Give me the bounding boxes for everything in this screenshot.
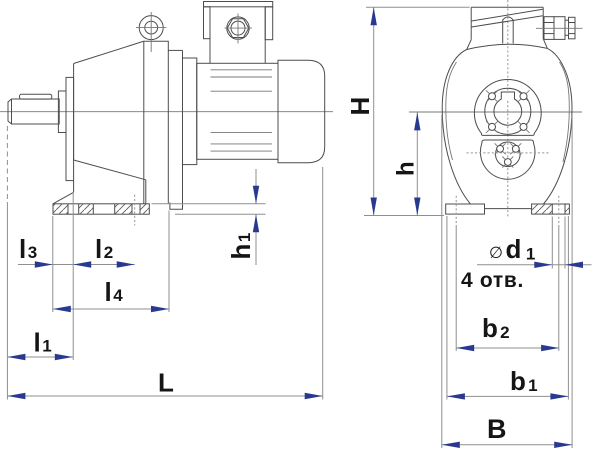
- svg-text:4 отв.: 4 отв.: [461, 269, 524, 292]
- svg-text:h: h: [392, 161, 419, 176]
- svg-text:L: L: [158, 368, 174, 398]
- svg-text:B: B: [487, 414, 507, 444]
- svg-text:H: H: [345, 97, 375, 116]
